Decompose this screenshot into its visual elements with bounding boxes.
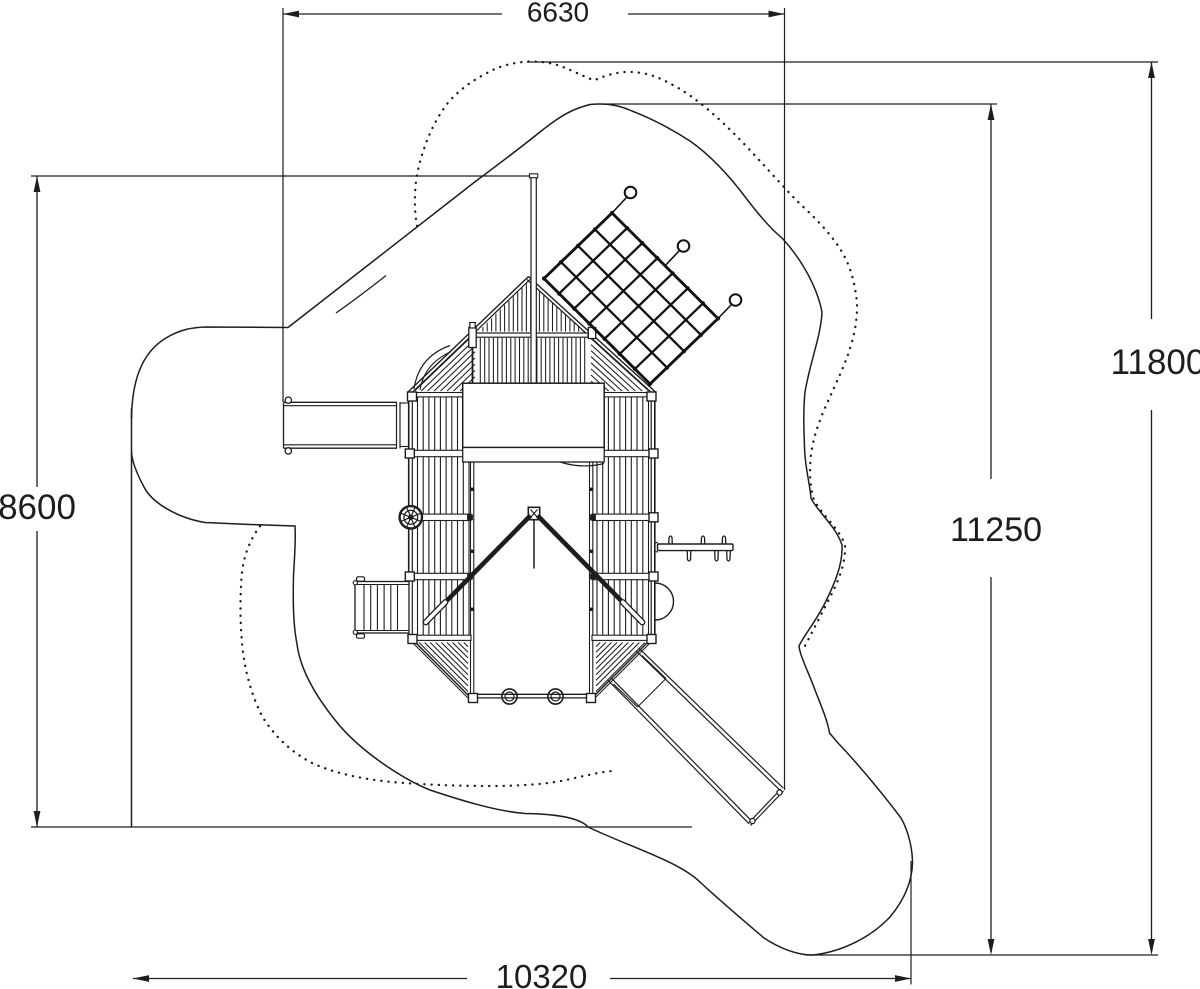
svg-text:10320: 10320 — [496, 958, 588, 989]
svg-text:6630: 6630 — [527, 0, 589, 28]
svg-text:11250: 11250 — [950, 511, 1042, 549]
svg-text:11800: 11800 — [1111, 343, 1200, 382]
svg-text:8600: 8600 — [0, 488, 76, 527]
